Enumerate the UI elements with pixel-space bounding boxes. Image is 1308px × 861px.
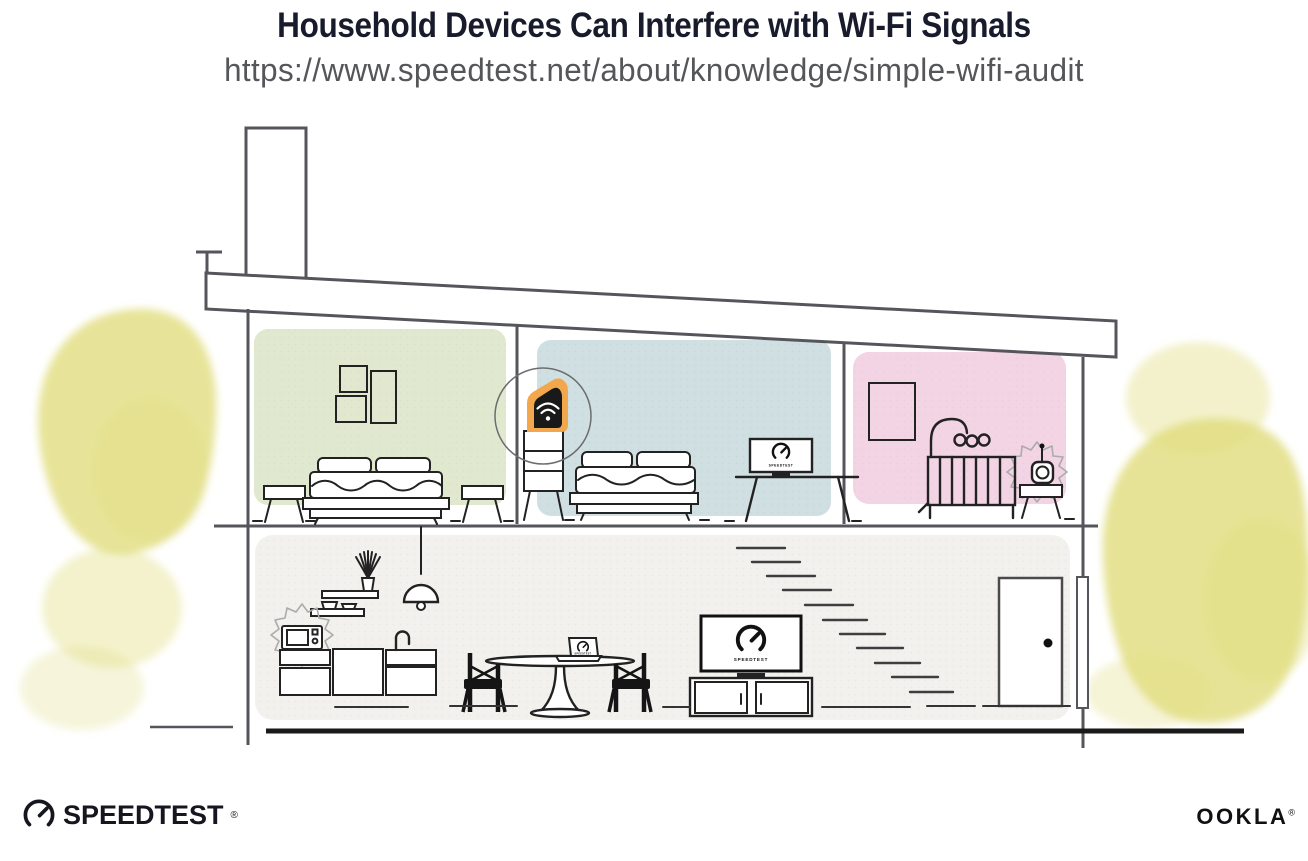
- wifi-router-icon: [527, 378, 568, 432]
- tv-console: [690, 678, 812, 716]
- downspout: [1077, 577, 1088, 708]
- bowl-icon: [342, 604, 356, 609]
- speedtest-wordmark: SPEEDTEST: [63, 800, 224, 831]
- floor-dashes: [565, 520, 861, 521]
- speedtest-registered-mark: ®: [231, 810, 238, 821]
- ookla-logo: OOKLA®: [1196, 804, 1295, 830]
- antenna-icon: [1040, 444, 1045, 449]
- speedtest-gauge-icon: [22, 798, 56, 832]
- microwave-icon: [282, 626, 322, 649]
- door-knob-icon: [1044, 639, 1053, 648]
- speedtest-logo: SPEEDTEST®: [22, 798, 238, 832]
- laptop-screen-label: SPEEDTEST: [575, 653, 592, 656]
- ground: [150, 727, 1244, 731]
- infographic-page: Household Devices Can Interfere with Wi-…: [0, 0, 1308, 861]
- foliage-blob-left: [20, 309, 216, 730]
- chimney: [246, 128, 306, 281]
- bedroom-tv: SPEEDTEST: [750, 439, 812, 476]
- bed: [303, 458, 449, 524]
- kitchen-cabinets: [280, 649, 436, 695]
- bedroom-tv-screen-label: SPEEDTEST: [769, 464, 794, 468]
- cup-icon: [322, 602, 337, 609]
- house-cross-section-illustration: SPEEDTEST: [0, 0, 1308, 861]
- ookla-registered-mark: ®: [1288, 808, 1295, 818]
- living-tv: SPEEDTEST: [701, 616, 801, 678]
- living-tv-screen-label: SPEEDTEST: [734, 657, 769, 662]
- front-door: [999, 578, 1062, 706]
- living-area: SPEEDTEST: [690, 616, 812, 716]
- ookla-wordmark: OOKLA: [1196, 804, 1288, 829]
- foliage-blob-right: [1086, 342, 1308, 728]
